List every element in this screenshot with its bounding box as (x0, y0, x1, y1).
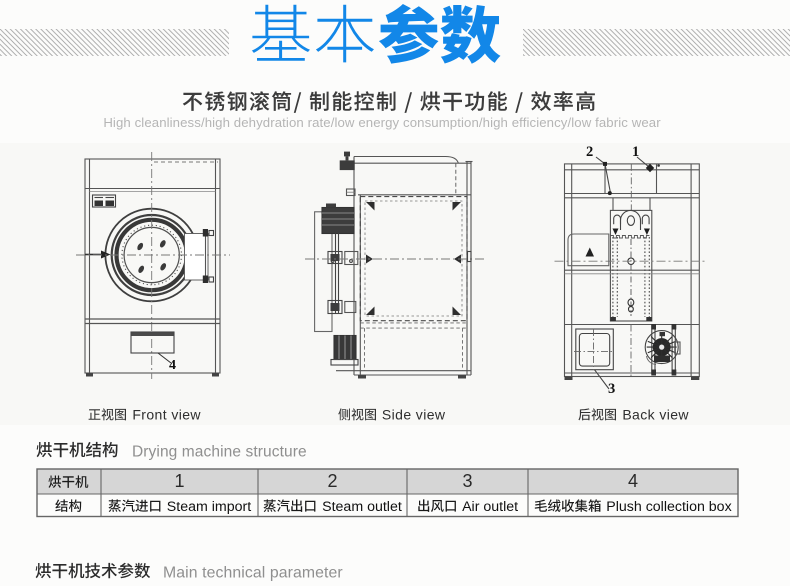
svg-text:3: 3 (608, 381, 615, 397)
svg-text:4: 4 (169, 358, 176, 373)
svg-text:2: 2 (586, 144, 593, 160)
